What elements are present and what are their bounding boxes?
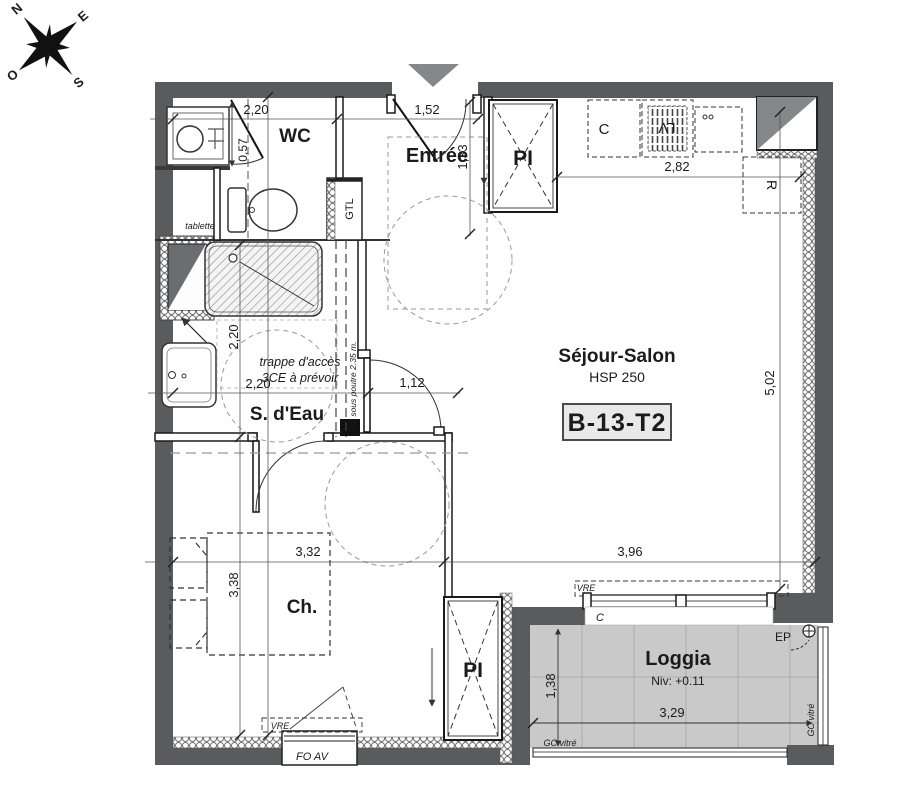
glass-guardrail-bottom <box>533 748 787 757</box>
unit-badge-label: B-13-T2 <box>568 409 667 437</box>
loggia-level-label: Niv: +0.11 <box>651 674 705 688</box>
bedroom-door-jamb-left <box>248 433 257 441</box>
floor-plan-page: N E S O <box>0 0 897 800</box>
glass-rail-bottom-label: GC vitré <box>543 738 576 748</box>
bathroom-depth-dim: 2,20 <box>226 324 241 349</box>
insulation-right-wall <box>803 155 815 593</box>
entree-width-dim: 1,52 <box>414 102 439 117</box>
nightstand-2 <box>170 600 207 648</box>
access-hatch-note-1: trappe d'accès <box>260 355 341 369</box>
loggia-wall-bottom-corner <box>787 745 834 765</box>
window-swing-line <box>290 687 343 729</box>
bathroom-door-swing <box>370 360 441 431</box>
bathroom-door-leaf <box>364 358 370 432</box>
bedroom-shutter-label: VRE <box>271 721 291 731</box>
floor-plan-drawing: N E S O <box>0 0 897 800</box>
loggia-width-dim: 3,29 <box>659 705 684 720</box>
kitchen-width-dim: 2,82 <box>664 159 689 174</box>
living-ceiling-label: HSP 250 <box>589 369 645 385</box>
bedroom-door-jamb-right <box>324 433 333 441</box>
wall-toilet-niche <box>214 168 220 240</box>
basin-dim: 0,57 <box>236 138 250 162</box>
insulation-bottom-left <box>173 737 282 748</box>
bedroom-width-dim: 3,32 <box>295 544 320 559</box>
bedroom-depth-dim: 3,38 <box>226 572 241 597</box>
exterior-wall-top-left <box>155 82 392 98</box>
kitchen-counter-box <box>588 100 640 157</box>
closet-entry-label: PI <box>513 147 533 170</box>
closet-entry: PI <box>484 100 557 212</box>
living-depth-dim: 5,02 <box>762 370 777 395</box>
access-hatch-note-2: 3CE à prévoir <box>262 371 339 385</box>
bay-shutter-label: VRE <box>577 583 597 593</box>
living-width-dim: 3,96 <box>617 544 642 559</box>
kitchen-counter-label: C <box>599 121 610 138</box>
bay-sill-label: C <box>596 612 604 624</box>
bathroom-door-jamb-top <box>358 350 370 358</box>
bathroom-label: S. d'Eau <box>250 404 324 425</box>
entree-depth-dim: 1,33 <box>455 144 470 169</box>
bedroom-label: Ch. <box>287 597 318 618</box>
bedroom-window-label: FO AV <box>296 751 330 763</box>
compass-east-label: E <box>75 7 92 24</box>
gtl-box: GTL <box>327 178 362 240</box>
dishwasher-label: LV <box>658 119 675 136</box>
closet-bedroom: PI <box>432 597 502 740</box>
glass-rail-right-label: GC vitré <box>806 703 816 736</box>
exterior-wall-right <box>815 82 833 623</box>
wc-label: WC <box>279 126 311 147</box>
wall-corner-bay-right <box>773 593 815 623</box>
bay-window-sill <box>585 607 773 625</box>
toilet-tank <box>228 188 246 232</box>
bathroom-door-jamb-bottom <box>434 427 444 435</box>
nightstand-1 <box>170 538 207 588</box>
bedroom-door-leaf <box>253 441 259 512</box>
wc-width-dim: 2,20 <box>243 102 268 117</box>
closet-bedroom-label: PI <box>463 659 483 682</box>
exterior-wall-top-right <box>478 82 833 98</box>
shower-tray <box>205 242 322 316</box>
entrance-marker-triangle-icon <box>408 64 459 87</box>
beam-height-note: ht. sous poutre 2.35 m. <box>348 342 358 429</box>
loggia-label: Loggia <box>645 648 711 670</box>
downpipe-label: EP <box>775 630 791 644</box>
gtl-label: GTL <box>344 198 356 219</box>
shower-drain <box>229 254 237 262</box>
wall-wc-entree <box>336 97 343 180</box>
toilet-bowl <box>249 189 297 231</box>
washbasin <box>162 343 216 407</box>
compass-south-label: S <box>70 74 87 91</box>
living-label: Séjour-Salon <box>558 346 675 367</box>
faucet-icon <box>703 115 707 119</box>
loggia-wall-horizontal <box>512 607 585 625</box>
bed-fold-mark <box>196 543 207 556</box>
bay-shutter-box <box>575 581 788 596</box>
exterior-wall-left <box>155 82 173 765</box>
wall-bathroom-hall <box>358 240 366 358</box>
bedroom-door-swing <box>256 441 326 512</box>
fridge-label: R <box>764 180 780 190</box>
bathroom-door-dim: 1,12 <box>399 375 424 390</box>
wall-bedroom-top-left <box>155 433 257 441</box>
duct-top-right <box>757 97 817 150</box>
compass-west-label: O <box>4 66 21 84</box>
entry-door-jamb-left <box>387 95 395 113</box>
loggia-depth-dim: 1,38 <box>543 673 558 698</box>
compass-north-label: N <box>8 0 25 18</box>
sink-box <box>695 107 742 152</box>
shelf-label: tablette <box>185 221 215 231</box>
compass-rose-icon: N E S O <box>0 0 122 121</box>
